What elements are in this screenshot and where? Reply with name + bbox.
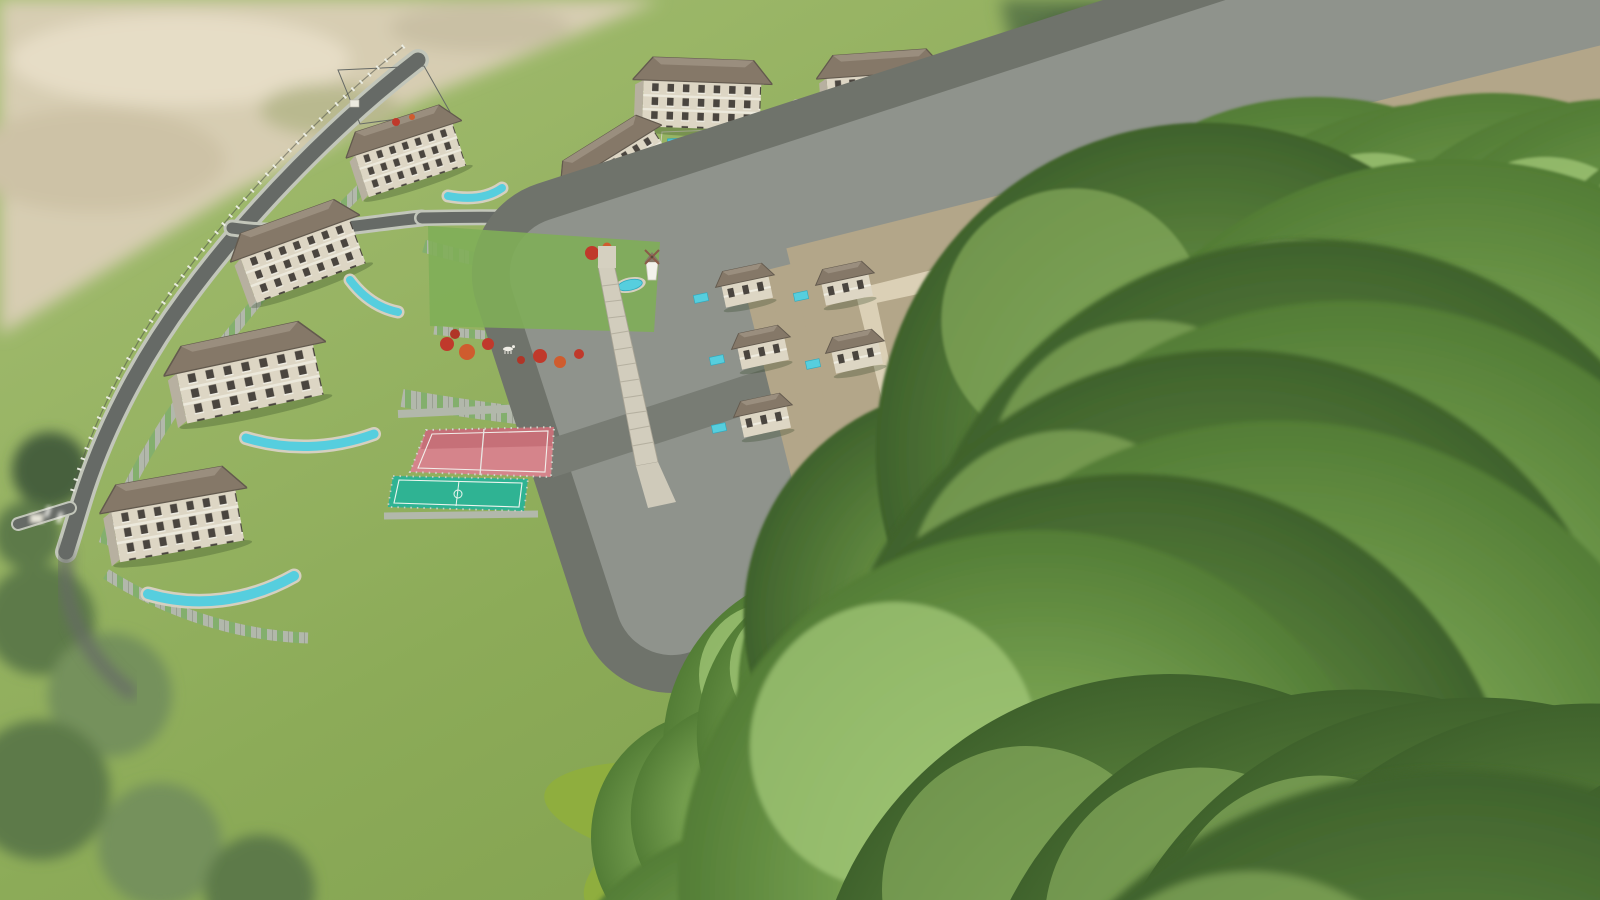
roof-flowers [392,118,400,126]
padel-court-shade [421,427,554,449]
court-lower-wall [384,514,538,516]
shore-strip [390,4,570,52]
flower-bed [517,356,525,364]
stair-top-landing [598,246,616,268]
flower-bed [482,338,494,350]
statue-head [512,345,515,348]
render-stage: Aerial 3D visualization of a hillside re… [0,0,1600,900]
guard-hut [350,100,359,107]
statue-body [503,347,513,351]
flower-bed [440,337,454,351]
flower-bed [554,356,566,368]
flower-bed [459,344,475,360]
gatehouse [30,514,43,523]
flowering-tree [585,246,599,260]
roof-flowers [409,114,415,120]
flower-bed [574,349,584,359]
flower-bed [533,349,547,363]
render-canvas [0,0,1600,900]
windmill-hub [651,256,654,259]
flower-bed [450,329,460,339]
windmill-body [646,262,658,280]
